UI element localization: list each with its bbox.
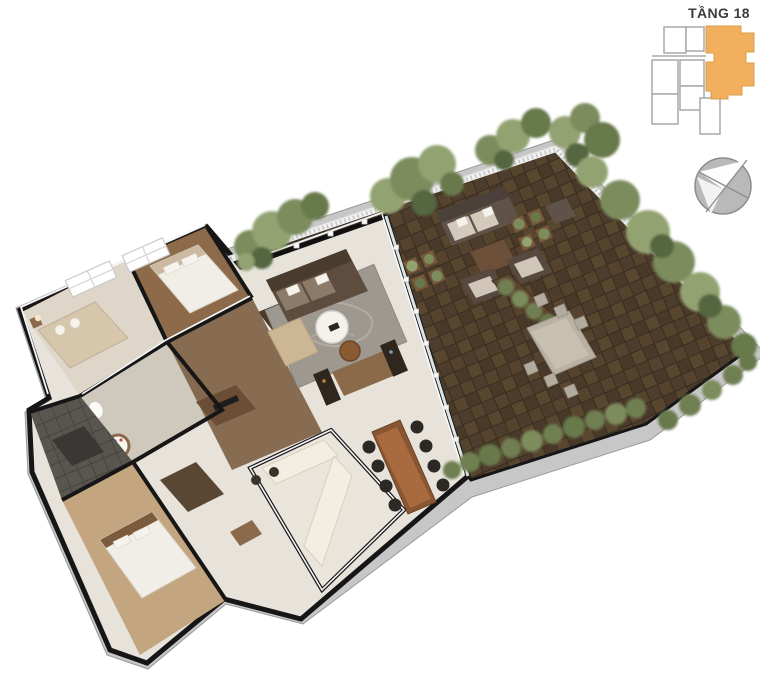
floorplan-render: [0, 0, 760, 678]
keyplan: [652, 26, 754, 134]
bar-stool: [269, 467, 279, 477]
bar-stool: [251, 475, 261, 485]
lamp: [35, 315, 41, 321]
compass-icon: [695, 158, 751, 214]
floorplan-page: TẦNG 18: [0, 0, 760, 678]
side-table: [340, 341, 360, 361]
keyplan-highlighted-unit: [706, 26, 754, 99]
floor-label: TẦNG 18: [550, 5, 750, 21]
